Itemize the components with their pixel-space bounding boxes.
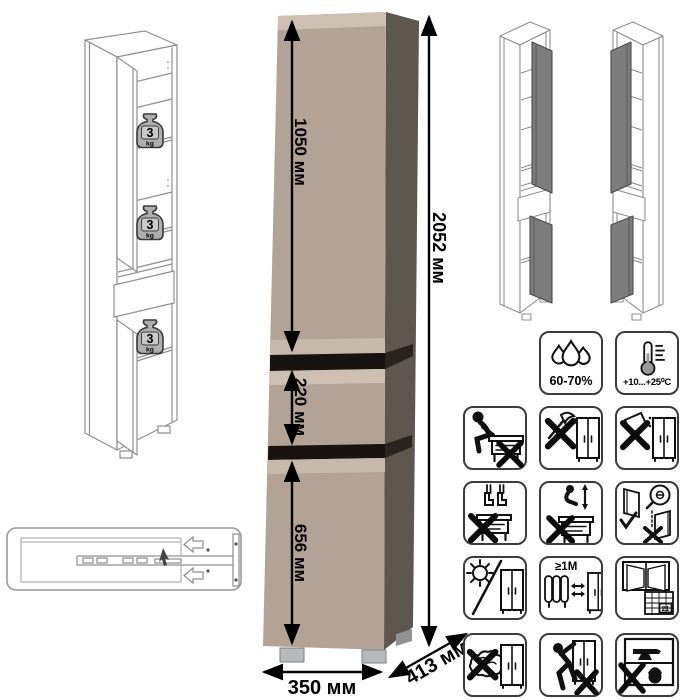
label-depth: 413 мм [402, 636, 472, 689]
ventilation-card: 21 [615, 556, 679, 620]
no-sitting-card [463, 406, 527, 470]
no-wet-cloth-card [463, 633, 527, 697]
drawer-front [270, 369, 385, 385]
label-drawer-height: 220 мм [291, 378, 310, 436]
no-sharp-tools-card [539, 406, 603, 470]
humidity-drops-icon [543, 338, 599, 374]
label-width: 350 мм [288, 677, 357, 699]
no-wet-cloth-icon [465, 635, 525, 695]
no-overload-icon [617, 635, 677, 695]
temperature-label: +10...+25⁰C [623, 378, 671, 388]
heat-distance-label: ≥1М [555, 561, 577, 573]
no-spilling-icon [617, 408, 677, 468]
ventilation-calendar-icon: 21 [617, 558, 677, 618]
wireframe-cabinet-right-hinged [611, 22, 663, 320]
temperature-card: +10...+25⁰C [615, 331, 679, 395]
wireframe-open-cabinet [0, 0, 250, 500]
no-sitting-icon [465, 408, 525, 468]
heat-distance-icon [541, 572, 601, 618]
door-adjustment-icon [617, 483, 677, 543]
no-standing-icon [465, 483, 525, 543]
no-dragging-icon [541, 635, 601, 695]
no-sunlight-icon [465, 558, 525, 618]
no-jumping-card [539, 481, 603, 545]
drawer-slide-diagram [5, 522, 248, 597]
thermometer-icon [619, 339, 675, 377]
no-sunlight-card [463, 556, 527, 620]
no-sharp-tools-icon [541, 408, 601, 468]
no-jumping-icon [541, 483, 601, 543]
no-standing-card [463, 481, 527, 545]
no-overload-card [615, 633, 679, 697]
humidity-label: 60-70% [549, 375, 592, 388]
no-spilling-card [615, 406, 679, 470]
label-lower-door-height: 656 мм [291, 524, 310, 582]
wireframe-pair-open-doors [490, 0, 683, 330]
cabinet-front [263, 12, 386, 650]
calendar-day-label: 21 [662, 606, 670, 613]
cabinet-side-panel [384, 12, 419, 650]
wireframe-cabinet-left-hinged [500, 22, 552, 320]
door-adjustment-card [615, 481, 679, 545]
no-dragging-card [539, 633, 603, 697]
label-upper-door-height: 1050 мм [291, 118, 310, 186]
humidity-card: 60-70% [539, 331, 603, 395]
heat-distance-card: ≥1М [539, 556, 603, 620]
label-total-height: 2052 мм [429, 212, 449, 284]
cabinet-3d-render: 1050 мм 220 мм 656 мм 2052 мм 350 мм 413… [250, 0, 483, 700]
